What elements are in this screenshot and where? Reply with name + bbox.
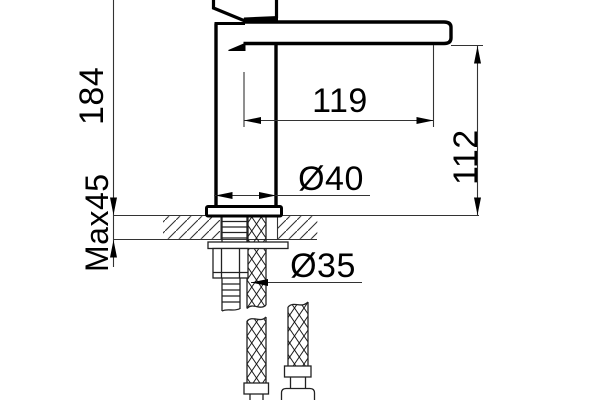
dim-label-hole-diameter: Ø35 <box>290 247 356 285</box>
dimension-body-diameter-40: Ø40 <box>214 160 370 199</box>
technical-drawing-canvas: 184 Max45 119 112 Ø40 Ø35 <box>0 0 600 400</box>
hose-left-end-tube <box>250 394 263 400</box>
hose-right-connector <box>282 389 315 400</box>
dim-label-spout-height: 112 <box>447 129 485 185</box>
handle-lever-left-edge <box>214 0 246 21</box>
dimension-hole-diameter-35: Ø35 <box>251 247 362 286</box>
threaded-tailpiece <box>222 278 240 311</box>
supply-hose-right <box>282 302 315 400</box>
hose-left-collar <box>244 383 269 394</box>
mounting-nut <box>213 249 248 279</box>
dim-label-spout-reach: 119 <box>312 82 368 120</box>
dim-label-height-above-deck: 184 <box>73 67 111 125</box>
deck-hatch-right <box>278 216 318 239</box>
spout <box>244 22 452 44</box>
arrow-left-icon <box>244 117 261 124</box>
deck-hatch-left <box>163 216 220 239</box>
dimension-max-deck-thickness: Max45 <box>79 173 117 272</box>
base-flange <box>207 207 282 217</box>
arrow-up-icon <box>474 46 481 64</box>
arrow-left-icon <box>216 192 233 199</box>
supply-hose-left-upper <box>247 216 266 309</box>
arrow-down-icon <box>474 198 481 216</box>
spout-body-fillet <box>229 44 246 51</box>
dim-label-body-diameter: Ø40 <box>298 160 364 198</box>
arrow-right-icon <box>259 192 276 199</box>
dimension-spout-reach-119: 119 <box>244 45 434 127</box>
dim-label-max-deck-thickness: Max45 <box>79 173 115 272</box>
hose-right-neck <box>291 377 306 389</box>
arrow-right-icon <box>417 117 434 124</box>
mounting-washer <box>208 242 288 249</box>
mounting-shank <box>222 216 248 242</box>
dimension-spout-height-112: 112 <box>447 46 485 216</box>
faucet-technical-drawing: 184 Max45 119 112 Ø40 Ø35 <box>0 0 600 400</box>
supply-hose-left-lower <box>244 317 269 400</box>
hose-right-collar <box>285 366 312 377</box>
